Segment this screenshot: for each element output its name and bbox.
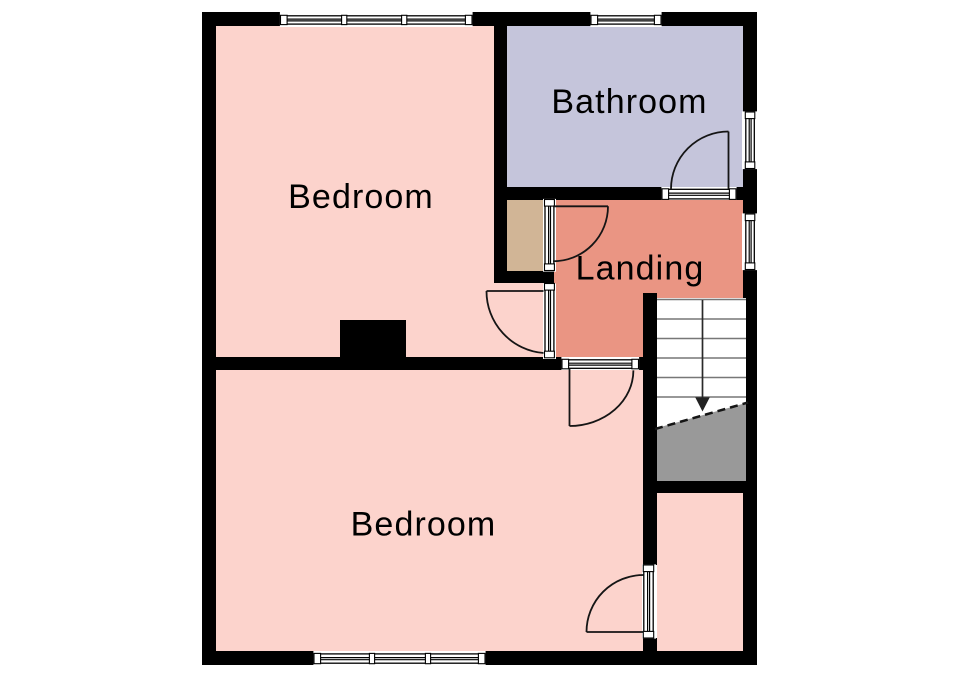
svg-text:Bedroom: Bedroom bbox=[351, 506, 497, 544]
svg-text:Bathroom: Bathroom bbox=[551, 83, 707, 121]
svg-text:Bedroom: Bedroom bbox=[288, 178, 434, 216]
svg-text:Landing: Landing bbox=[576, 250, 705, 288]
